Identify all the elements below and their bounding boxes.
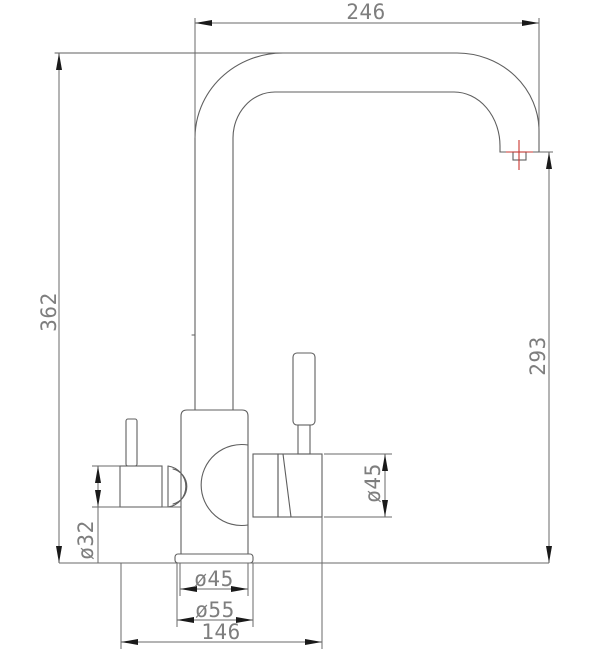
arrow-o32-top xyxy=(95,466,101,483)
right-handle-neck xyxy=(298,425,310,454)
right-connection-sphere xyxy=(201,445,248,526)
dim-label-overall-height: 362 xyxy=(37,292,61,331)
dim-label-right-valve-diameter: ø45 xyxy=(361,463,385,502)
dim-label-valve-span-width: 146 xyxy=(201,620,240,644)
spout-center-mark xyxy=(506,140,533,170)
dim-label-left-valve-diameter: ø32 xyxy=(74,520,98,559)
arrow-362-bottom xyxy=(56,546,62,563)
arrow-246-right xyxy=(522,20,539,26)
dim-label-base-flange-diameter: ø55 xyxy=(195,598,234,622)
base-flange xyxy=(175,554,253,563)
arrow-146-right xyxy=(305,639,322,645)
left-valve-cylinder xyxy=(120,466,162,507)
left-handle-lever xyxy=(126,419,137,466)
left-valve-sphere-cap xyxy=(168,466,187,507)
right-valve-taper-line xyxy=(283,454,291,517)
arrow-146-left xyxy=(121,639,138,645)
arrow-293-bottom xyxy=(546,546,552,563)
dimension-arrows xyxy=(56,20,552,645)
arrow-o32-bottom xyxy=(95,490,101,507)
faucet-dimension-drawing: 246 362 293 ø45 ø32 ø45 ø55 146 xyxy=(0,0,614,655)
right-valve-locknut xyxy=(253,454,278,517)
right-handle-grip xyxy=(293,353,315,425)
arrow-o55-left xyxy=(177,617,194,623)
drawing-sheet: 246 362 293 ø45 ø32 ø45 ø55 146 xyxy=(0,0,614,655)
dimension-lines xyxy=(59,18,553,649)
arrow-293-top xyxy=(546,152,552,169)
arrow-246-left xyxy=(195,20,212,26)
dim-label-spout-reach: 246 xyxy=(346,0,385,24)
valve-body xyxy=(181,410,248,554)
dim-label-mounting-neck-diameter: ø45 xyxy=(194,567,233,591)
riser-left-edge xyxy=(195,53,283,410)
arrow-362-top xyxy=(56,53,62,70)
spout-profile xyxy=(55,53,539,410)
faucet-outline xyxy=(55,53,539,563)
dim-label-spout-outlet-height: 293 xyxy=(526,336,550,375)
